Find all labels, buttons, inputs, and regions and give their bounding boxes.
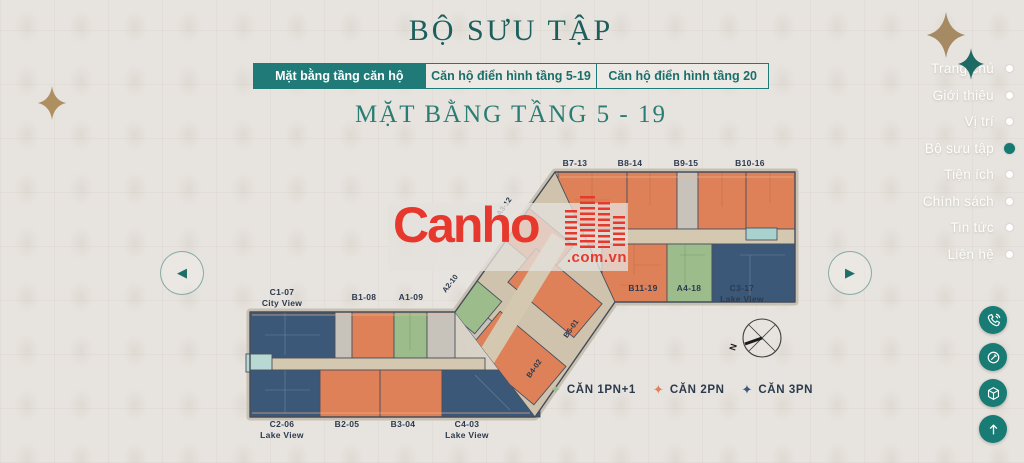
nav-dot-icon [1003, 65, 1016, 72]
phone-fab-button[interactable] [979, 306, 1007, 334]
scroll-top-fab-button[interactable] [979, 415, 1007, 443]
side-nav: Trang chủ Giới thiệu Vị trí Bộ sưu tập T… [923, 60, 1016, 263]
nav-dot-icon [1003, 224, 1016, 231]
unit-label: A4-18 [677, 283, 702, 294]
nav-dot-icon [1003, 92, 1016, 99]
tab-floor-plan[interactable]: Mặt bằng tầng căn hộ [254, 64, 425, 88]
unit-id: C2-06 [260, 419, 304, 430]
nav-item-tien-ich[interactable]: Tiện ích [944, 166, 1016, 183]
nav-label: Chính sách [923, 194, 994, 209]
nav-dot-icon [1003, 198, 1016, 205]
watermark-brand: Canho [393, 196, 539, 254]
nav-dot-icon [1003, 251, 1016, 258]
unit-id: C1-07 [262, 287, 302, 298]
arrow-up-icon [986, 422, 1001, 437]
unit-view: Lake View [445, 430, 489, 441]
unit-label: B3-04 [391, 419, 416, 430]
unit-view: Lake View [720, 294, 764, 305]
unit-label: B10-16 [735, 158, 765, 169]
unit-label: C1-07 City View [262, 287, 302, 308]
nav-dot-icon [1003, 118, 1016, 125]
view-3d-fab-button[interactable] [979, 379, 1007, 407]
nav-item-chinh-sach[interactable]: Chính sách [923, 193, 1016, 210]
chat-pencil-icon [986, 350, 1001, 365]
watermark: Canho .com.vn [388, 203, 628, 271]
cube-3d-icon [986, 386, 1001, 401]
nav-label: Liên hệ [948, 247, 994, 262]
legend-item-1pn1: ✦ CĂN 1PN+1 [550, 383, 636, 396]
nav-dot-icon [1003, 143, 1016, 154]
carousel-prev-button[interactable]: ◀ [160, 251, 204, 295]
unit-label: B9-15 [674, 158, 699, 169]
legend-label: CĂN 3PN [758, 384, 813, 396]
nav-item-gioi-thieu[interactable]: Giới thiệu [933, 87, 1016, 104]
watermark-logo-icon [565, 198, 625, 248]
page-title: BỘ SƯU TẬP [253, 14, 769, 48]
unit-view: City View [262, 298, 302, 309]
unit-label: B2-05 [335, 419, 360, 430]
legend-star-blue-icon: ✦ [742, 383, 753, 396]
unit-id: C3-17 [720, 283, 764, 294]
unit-label: B1-08 [352, 292, 377, 303]
unit-label: C2-06 Lake View [260, 419, 304, 440]
arrow-left-icon: ◀ [177, 265, 187, 281]
arrow-right-icon: ▶ [845, 265, 855, 281]
unit-label: C4-03 Lake View [445, 419, 489, 440]
nav-item-bo-suu-tap[interactable]: Bộ sưu tập [925, 140, 1016, 157]
watermark-domain: .com.vn [567, 249, 627, 266]
legend-item-3pn: ✦ CĂN 3PN [742, 383, 814, 396]
section-subtitle: MẶT BẰNG TẦNG 5 - 19 [253, 101, 769, 129]
unit-label: A1-09 [399, 292, 424, 303]
legend-label: CĂN 1PN+1 [567, 384, 636, 396]
legend-item-2pn: ✦ CĂN 2PN [653, 383, 725, 396]
page-background: BỘ SƯU TẬP Mặt bằng tầng căn hộ Căn hộ đ… [0, 0, 1024, 463]
nav-label: Tiện ích [944, 167, 994, 182]
tab-typical-units-5-19[interactable]: Căn hộ điển hình tầng 5-19 [425, 64, 597, 88]
nav-label: Bộ sưu tập [925, 141, 994, 156]
unit-label-a2-10: A2-10 [440, 273, 460, 295]
sparkle-gold-left-icon [38, 85, 66, 121]
nav-dot-icon [1003, 171, 1016, 178]
unit-id: C4-03 [445, 419, 489, 430]
compass-north-label: N [727, 342, 739, 351]
unit-view: Lake View [260, 430, 304, 441]
unit-label: B8-14 [618, 158, 643, 169]
legend: ✦ CĂN 1PN+1 ✦ CĂN 2PN ✦ CĂN 3PN [550, 383, 813, 396]
nav-label: Giới thiệu [933, 88, 994, 103]
contact-fab-button[interactable] [979, 343, 1007, 371]
tab-bar: Mặt bằng tầng căn hộ Căn hộ điển hình tầ… [253, 63, 769, 89]
nav-label: Tin tức [950, 220, 994, 235]
sparkle-teal-icon [958, 48, 984, 80]
nav-item-tin-tuc[interactable]: Tin tức [950, 219, 1016, 236]
unit-label: B7-13 [563, 158, 588, 169]
carousel-next-button[interactable]: ▶ [828, 251, 872, 295]
legend-label: CĂN 2PN [670, 384, 725, 396]
tab-typical-units-20[interactable]: Căn hộ điển hình tầng 20 [596, 64, 768, 88]
unit-label: C3-17 Lake View [720, 283, 764, 304]
nav-item-lien-he[interactable]: Liên hệ [948, 246, 1016, 263]
legend-star-orange-icon: ✦ [653, 383, 664, 396]
nav-item-vi-tri[interactable]: Vị trí [964, 113, 1016, 130]
legend-star-green-icon: ✦ [550, 383, 561, 396]
phone-icon [986, 313, 1001, 328]
nav-label: Vị trí [964, 114, 994, 129]
unit-label: B11-19 [628, 283, 657, 294]
compass-icon: N [727, 319, 781, 357]
